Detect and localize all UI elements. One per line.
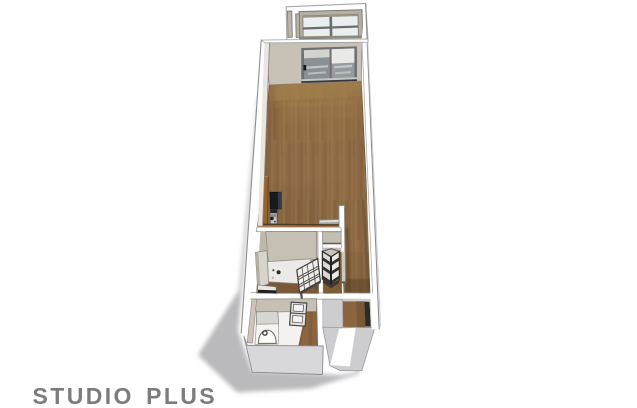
svg-text:STUDIO PLUS: STUDIO PLUS — [33, 383, 218, 408]
